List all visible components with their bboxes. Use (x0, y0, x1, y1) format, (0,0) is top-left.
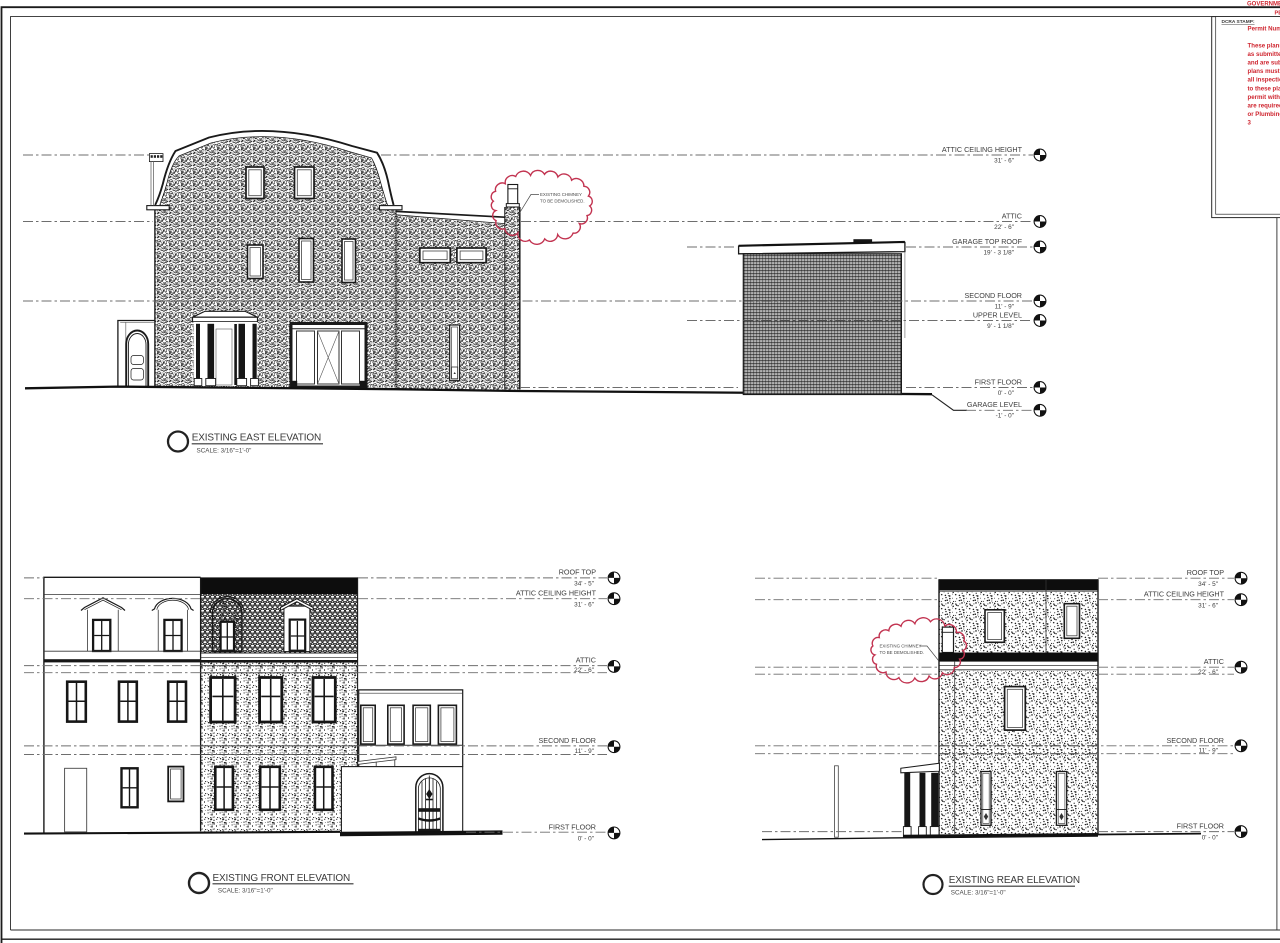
svg-text:all inspection: all inspection (1248, 77, 1280, 84)
svg-text:ATTIC: ATTIC (1204, 657, 1224, 666)
svg-text:GARAGE TOP ROOF: GARAGE TOP ROOF (952, 237, 1023, 246)
svg-text:SECOND FLOOR: SECOND FLOOR (538, 736, 596, 745)
svg-text:EXISTING EAST ELEVATION: EXISTING EAST ELEVATION (192, 433, 321, 444)
svg-text:SECOND FLOOR: SECOND FLOOR (964, 291, 1022, 300)
svg-text:EXISTING CHIMNEY: EXISTING CHIMNEY (540, 192, 582, 197)
svg-text:TO BE DEMOLISHED.: TO BE DEMOLISHED. (540, 198, 585, 203)
svg-text:-1' - 0": -1' - 0" (996, 412, 1014, 419)
svg-text:31' - 6": 31' - 6" (994, 158, 1014, 165)
svg-text:11' - 9": 11' - 9" (995, 304, 1014, 311)
svg-text:31' - 6": 31' - 6" (574, 602, 594, 609)
svg-text:SCALE: 3/16"=1'-0": SCALE: 3/16"=1'-0" (218, 888, 273, 895)
svg-text:These plans a: These plans a (1248, 42, 1280, 49)
svg-text:9' - 1 1/8": 9' - 1 1/8" (987, 323, 1014, 330)
svg-text:and are subje: and are subje (1248, 60, 1280, 67)
svg-text:TO BE DEMOLISHED.: TO BE DEMOLISHED. (880, 650, 925, 655)
svg-text:ROOF TOP: ROOF TOP (1187, 568, 1224, 577)
svg-text:SCALE: 3/16"=1'-0": SCALE: 3/16"=1'-0" (197, 448, 252, 455)
svg-text:ATTIC CEILING HEIGHT: ATTIC CEILING HEIGHT (942, 145, 1023, 154)
svg-text:SECOND FLOOR: SECOND FLOOR (1166, 736, 1224, 745)
svg-text:11' - 9": 11' - 9" (575, 748, 594, 755)
svg-text:ATTIC: ATTIC (576, 656, 596, 665)
svg-text:FIRST FLOOR: FIRST FLOOR (549, 822, 596, 831)
svg-text:EXISTING REAR ELEVATION: EXISTING REAR ELEVATION (949, 875, 1080, 886)
svg-text:as submitted: as submitted (1248, 51, 1280, 58)
svg-text:0' - 0": 0' - 0" (1202, 835, 1218, 842)
svg-text:GOVERNMENT OF THE: GOVERNMENT OF THE (1247, 1, 1280, 7)
svg-text:DCRA STAMP:: DCRA STAMP: (1222, 19, 1255, 25)
svg-text:FIRST FLOOR: FIRST FLOOR (1177, 822, 1224, 831)
svg-text:or Plumbing: or Plumbing (1248, 111, 1280, 118)
svg-text:31' - 6": 31' - 6" (1198, 603, 1218, 610)
svg-text:ATTIC CEILING HEIGHT: ATTIC CEILING HEIGHT (516, 589, 597, 598)
svg-text:UPPER LEVEL: UPPER LEVEL (973, 311, 1022, 320)
svg-text:22' - 6": 22' - 6" (1198, 669, 1218, 676)
svg-text:0' - 0": 0' - 0" (998, 390, 1014, 397)
svg-text:permit with t: permit with t (1248, 94, 1280, 101)
svg-text:11' - 9": 11' - 9" (1199, 748, 1218, 755)
svg-text:22' - 6": 22' - 6" (574, 667, 594, 674)
svg-text:to these plan: to these plan (1248, 85, 1280, 92)
svg-text:plans must be: plans must be (1248, 68, 1280, 75)
svg-text:SCALE: 3/16"=1'-0": SCALE: 3/16"=1'-0" (951, 889, 1006, 896)
svg-text:GARAGE LEVEL: GARAGE LEVEL (967, 400, 1022, 409)
svg-text:22' - 6": 22' - 6" (994, 224, 1014, 231)
svg-text:Permit Numb: Permit Numb (1248, 26, 1280, 33)
svg-text:0' - 0": 0' - 0" (578, 835, 594, 842)
svg-text:34' - 5": 34' - 5" (574, 581, 594, 588)
svg-text:34' - 5": 34' - 5" (1198, 581, 1218, 588)
svg-text:ATTIC CEILING HEIGHT: ATTIC CEILING HEIGHT (1144, 589, 1225, 598)
svg-text:EXISTING FRONT ELEVATION: EXISTING FRONT ELEVATION (213, 873, 351, 884)
svg-text:19' - 3 1/8": 19' - 3 1/8" (984, 250, 1015, 257)
svg-text:are required: are required (1248, 103, 1280, 110)
svg-text:FIRST FLOOR: FIRST FLOOR (975, 378, 1022, 387)
svg-text:ATTIC: ATTIC (1002, 212, 1022, 221)
svg-text:ROOF TOP: ROOF TOP (559, 568, 596, 577)
svg-text:PERMIT: PERMIT (1275, 11, 1280, 17)
svg-text:EXISTING CHIMNEY: EXISTING CHIMNEY (880, 644, 922, 649)
